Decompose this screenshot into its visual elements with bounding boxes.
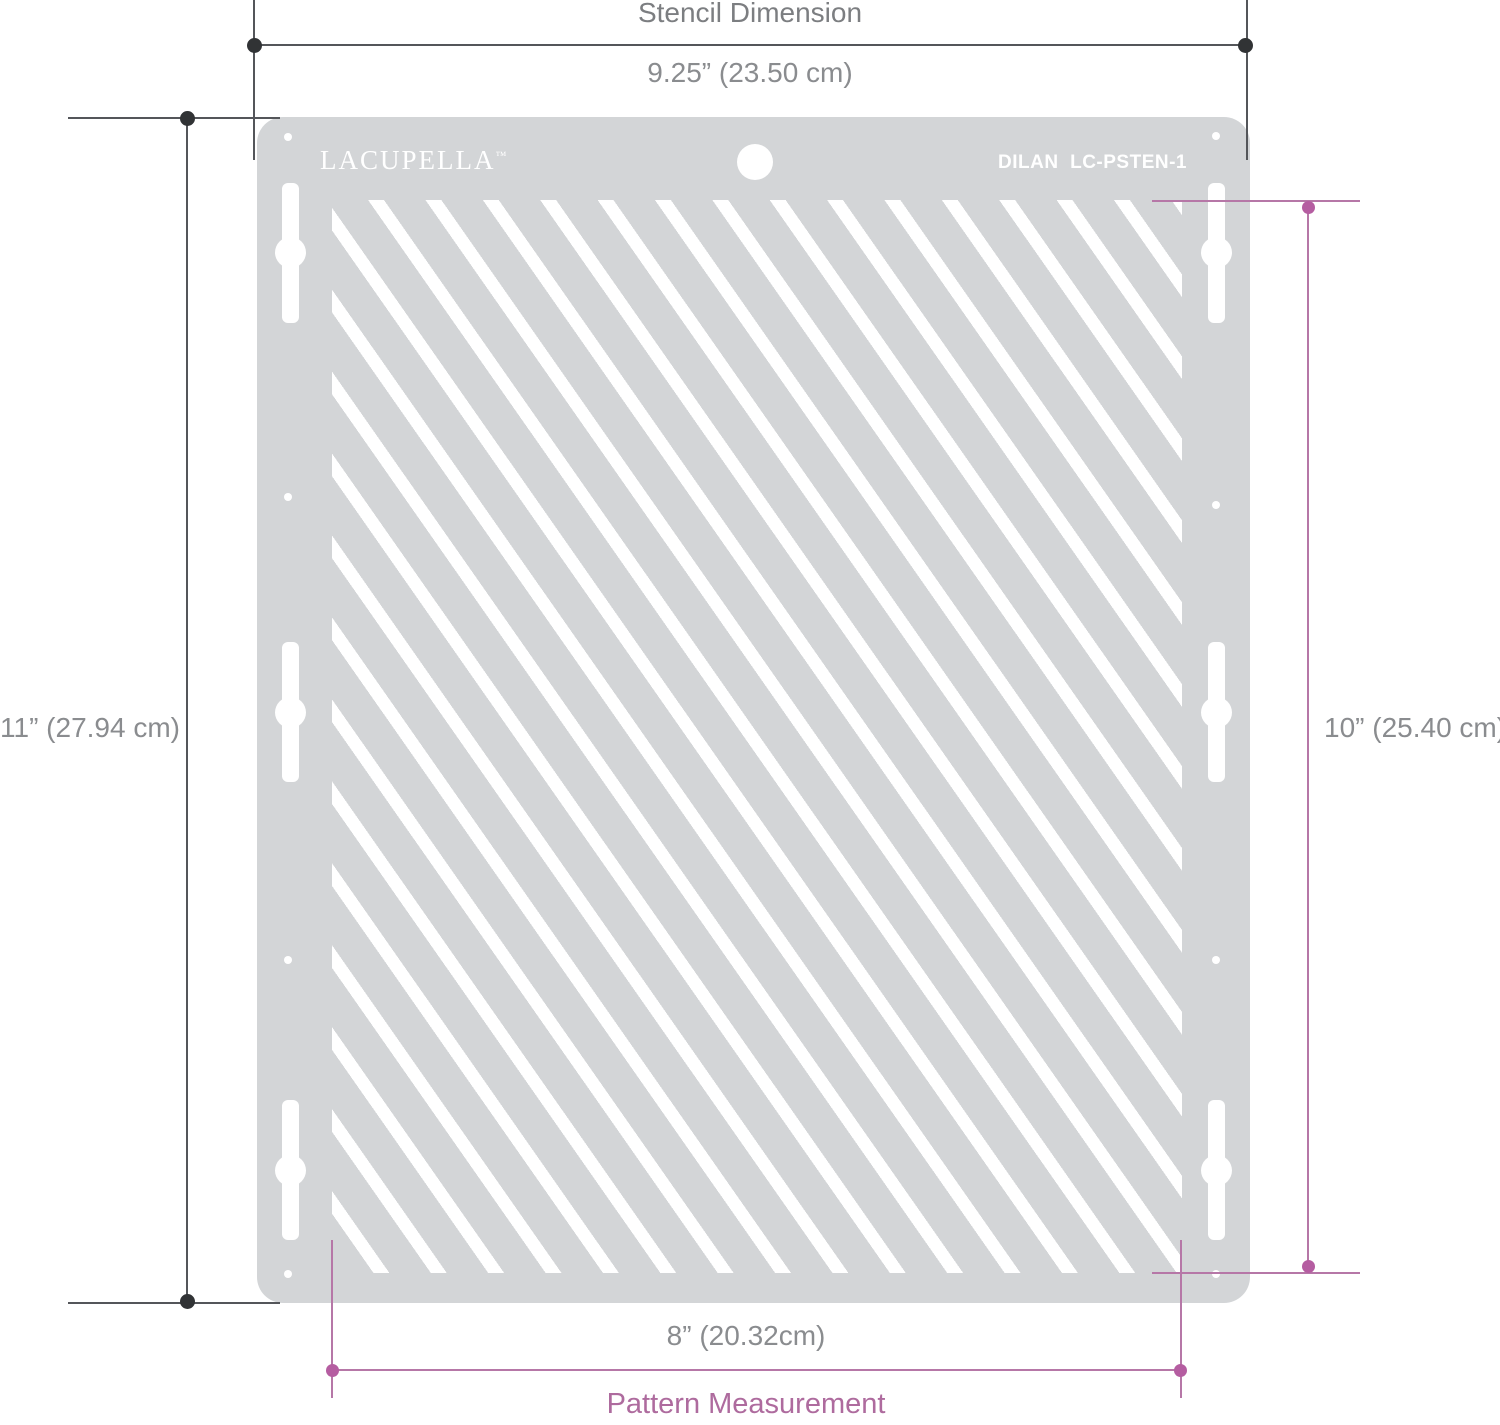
model-number: DILAN LC-PSTEN-1 (998, 152, 1187, 174)
pattern-width-dimension-line (332, 1369, 1181, 1371)
dimension-endpoint-dot (1238, 38, 1253, 53)
extension-line (1152, 200, 1360, 202)
pattern-height-label: 10” (25.40 cm) (1324, 712, 1500, 744)
pin-hole (284, 133, 292, 141)
dimension-endpoint-dot (326, 1364, 339, 1377)
pin-hole (284, 956, 292, 964)
dimension-endpoint-dot (180, 111, 195, 126)
brand-text: LACUPELLA (320, 145, 496, 175)
extension-line (253, 0, 255, 160)
extension-line (1152, 1272, 1360, 1274)
registration-slot-circle (1201, 237, 1232, 268)
registration-slot-circle (1201, 697, 1232, 728)
dimension-endpoint-dot (247, 38, 262, 53)
diagonal-stripe-pattern (332, 200, 1182, 1273)
pin-hole (284, 1270, 292, 1278)
pin-hole (284, 493, 292, 501)
pattern-width-label: 8” (20.32cm) (667, 1320, 826, 1352)
extension-line (68, 117, 280, 119)
stencil-height-dimension-line (186, 118, 188, 1302)
stencil-width-label: 9.25” (23.50 cm) (647, 57, 852, 89)
pin-hole (1212, 956, 1220, 964)
center-mounting-hole (737, 144, 773, 180)
pin-hole (1212, 132, 1220, 140)
pin-hole (1212, 501, 1220, 509)
pattern-measurement-title: Pattern Measurement (607, 1388, 886, 1421)
stencil-dimension-title: Stencil Dimension (638, 0, 862, 29)
stencil-height-label: 11” (27.94 cm) (0, 712, 178, 744)
pattern-height-dimension-line (1307, 206, 1309, 1267)
extension-line (1246, 0, 1248, 160)
dimension-endpoint-dot (180, 1294, 195, 1309)
registration-slot-circle (275, 237, 306, 268)
extension-line (68, 1302, 280, 1304)
dimension-endpoint-dot (1302, 201, 1315, 214)
diagram-canvas: LACUPELLA™ DILAN LC-PSTEN-1 Stencil Dime… (0, 0, 1500, 1425)
dimension-endpoint-dot (1302, 1260, 1315, 1273)
registration-slot-circle (1201, 1155, 1232, 1186)
dimension-endpoint-dot (1174, 1364, 1187, 1377)
trademark-symbol: ™ (496, 150, 507, 162)
brand-logo: LACUPELLA™ (320, 145, 506, 176)
registration-slot-circle (275, 1155, 306, 1186)
stencil-width-dimension-line (254, 44, 1246, 46)
registration-slot-circle (275, 697, 306, 728)
